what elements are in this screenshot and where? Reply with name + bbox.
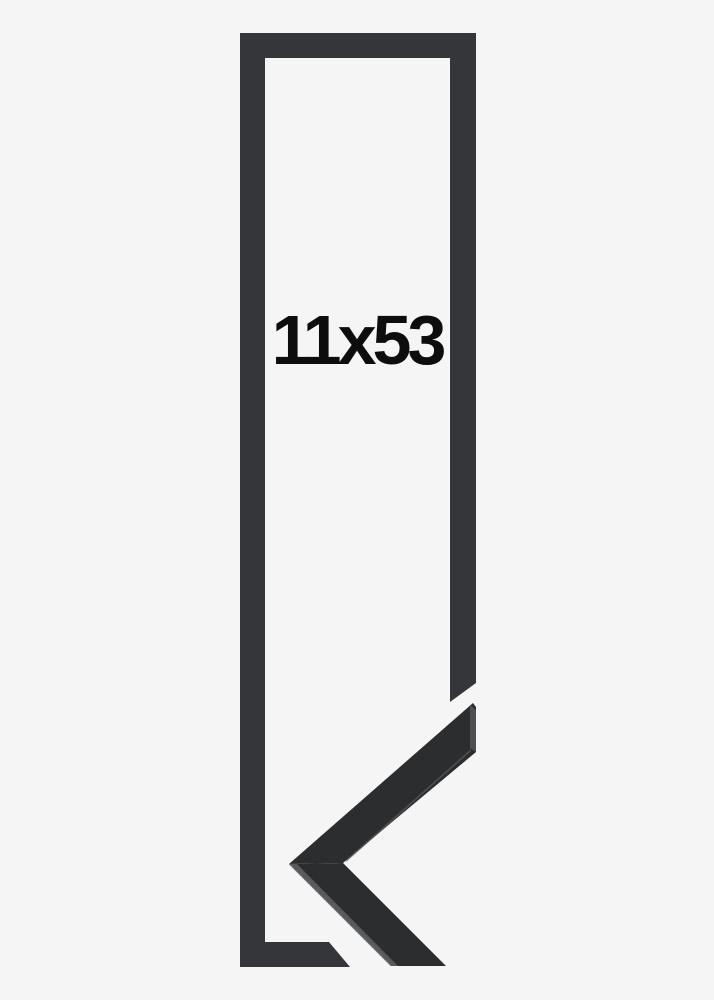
moulding-top-arm-end-face: [470, 705, 476, 752]
frame-outline-left-bar: [240, 33, 265, 967]
frame-outline-graphic: [0, 0, 714, 1000]
frame-size-label: 11x53: [0, 314, 714, 366]
moulding-top-arm: [289, 703, 476, 864]
frame-size-mockup: 11x53: [0, 0, 714, 1000]
frame-outline-top-bar: [240, 33, 476, 58]
frame-outline-bottom-bar: [240, 942, 350, 967]
frame-outline-right-bar: [450, 33, 476, 702]
moulding-corner-sample: [289, 703, 476, 966]
